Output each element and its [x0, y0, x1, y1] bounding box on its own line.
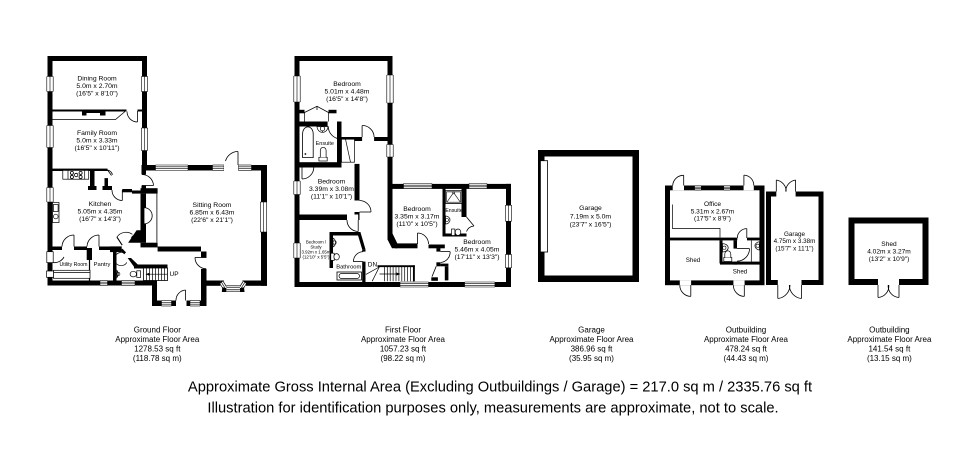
svg-text:4.02m x 3.27m: 4.02m x 3.27m [867, 249, 911, 256]
svg-text:Office: Office [704, 201, 721, 208]
svg-text:3.39m x 3.08m: 3.39m x 3.08m [309, 186, 354, 193]
svg-text:Family Room: Family Room [77, 130, 117, 137]
svg-text:(22'6" x 21'1"): (22'6" x 21'1") [191, 217, 233, 224]
svg-text:(12'10" x 5'5"): (12'10" x 5'5") [302, 255, 330, 260]
svg-text:5.31m x 2.67m: 5.31m x 2.67m [691, 208, 735, 215]
svg-text:(16'5" x 8'10"): (16'5" x 8'10") [76, 90, 118, 97]
svg-text:First Floor: First Floor [385, 326, 421, 335]
svg-text:386.96 sq ft: 386.96 sq ft [571, 345, 614, 354]
svg-text:Ensuite: Ensuite [316, 141, 334, 147]
svg-text:5.0m x 3.33m: 5.0m x 3.33m [76, 137, 118, 144]
svg-text:Pantry: Pantry [94, 262, 111, 268]
svg-text:Approximate Floor Area: Approximate Floor Area [549, 335, 634, 344]
svg-text:5.46m x 4.05m: 5.46m x 4.05m [455, 246, 500, 253]
svg-text:(17'11" x 13'3"): (17'11" x 13'3") [454, 254, 499, 261]
svg-text:UP: UP [170, 271, 179, 278]
svg-text:5.05m x 4.35m: 5.05m x 4.35m [78, 208, 123, 215]
svg-text:6.85m x 6.43m: 6.85m x 6.43m [190, 209, 235, 216]
svg-text:7.19m x 5.0m: 7.19m x 5.0m [570, 213, 612, 220]
svg-text:Illustration for identificatio: Illustration for identification purposes… [207, 401, 778, 417]
svg-text:Shed: Shed [733, 268, 748, 275]
svg-text:Approximate Floor Area: Approximate Floor Area [704, 335, 789, 344]
svg-text:Bedroom: Bedroom [403, 206, 431, 213]
svg-text:Outbuilding: Outbuilding [726, 326, 766, 335]
svg-text:Shed: Shed [686, 257, 701, 264]
svg-text:1057.23 sq ft: 1057.23 sq ft [380, 345, 427, 354]
svg-text:Shed: Shed [881, 241, 897, 248]
svg-text:Garage: Garage [578, 326, 605, 335]
svg-text:3.35m x 3.17m: 3.35m x 3.17m [395, 213, 440, 220]
svg-text:(23'7" x 16'5"): (23'7" x 16'5") [570, 222, 612, 229]
svg-text:Bedroom: Bedroom [463, 239, 491, 246]
svg-text:(11'0" x 10'5"): (11'0" x 10'5") [396, 221, 437, 228]
svg-text:5.01m x 4.48m: 5.01m x 4.48m [325, 88, 370, 95]
svg-text:(16'5" x 10'11"): (16'5" x 10'11") [74, 145, 119, 152]
svg-text:(15'7" x 11'1"): (15'7" x 11'1") [775, 246, 813, 253]
svg-text:Bedroom: Bedroom [333, 81, 361, 88]
svg-text:Bathroom: Bathroom [336, 265, 361, 271]
svg-text:Approximate Floor Area: Approximate Floor Area [847, 335, 932, 344]
svg-text:Bedroom: Bedroom [318, 178, 346, 185]
svg-text:4.75m x 3.38m: 4.75m x 3.38m [774, 238, 816, 245]
svg-text:(44.43 sq m): (44.43 sq m) [724, 354, 769, 363]
svg-text:DN: DN [368, 261, 378, 268]
svg-text:478.24 sq ft: 478.24 sq ft [725, 345, 768, 354]
svg-text:Garage: Garage [579, 205, 602, 212]
svg-text:(98.22 sq m): (98.22 sq m) [381, 354, 426, 363]
svg-text:Approximate Floor Area: Approximate Floor Area [361, 335, 446, 344]
svg-text:(17'5" x 8'9"): (17'5" x 8'9") [694, 216, 731, 223]
svg-text:(13.15 sq m): (13.15 sq m) [867, 354, 912, 363]
svg-text:(16'7" x 14'3"): (16'7" x 14'3") [79, 216, 121, 223]
svg-text:Approximate Floor Area: Approximate Floor Area [115, 335, 200, 344]
svg-text:(16'5" x 14'8"): (16'5" x 14'8") [326, 96, 368, 103]
svg-text:Dining Room: Dining Room [77, 75, 117, 82]
svg-text:Utility Room: Utility Room [60, 262, 88, 268]
svg-text:(118.78 sq m): (118.78 sq m) [133, 354, 182, 363]
svg-text:(13'2" x 10'9"): (13'2" x 10'9") [869, 256, 910, 263]
svg-text:Outbuilding: Outbuilding [869, 326, 909, 335]
svg-text:Ensuite: Ensuite [445, 208, 462, 214]
svg-text:Approximate Gross Internal Are: Approximate Gross Internal Area (Excludi… [188, 380, 812, 396]
svg-text:(11'1" x 10'1"): (11'1" x 10'1") [311, 193, 352, 200]
svg-text:1278.53 sq ft: 1278.53 sq ft [134, 345, 181, 354]
svg-text:Kitchen: Kitchen [89, 201, 112, 208]
svg-text:Sitting Room: Sitting Room [193, 202, 232, 209]
svg-text:141.54 sq ft: 141.54 sq ft [868, 345, 911, 354]
svg-text:(35.95 sq m): (35.95 sq m) [569, 354, 614, 363]
svg-text:Garage: Garage [784, 231, 806, 238]
svg-text:Ground Floor: Ground Floor [134, 326, 181, 335]
svg-text:5.0m x 2.70m: 5.0m x 2.70m [76, 83, 118, 90]
